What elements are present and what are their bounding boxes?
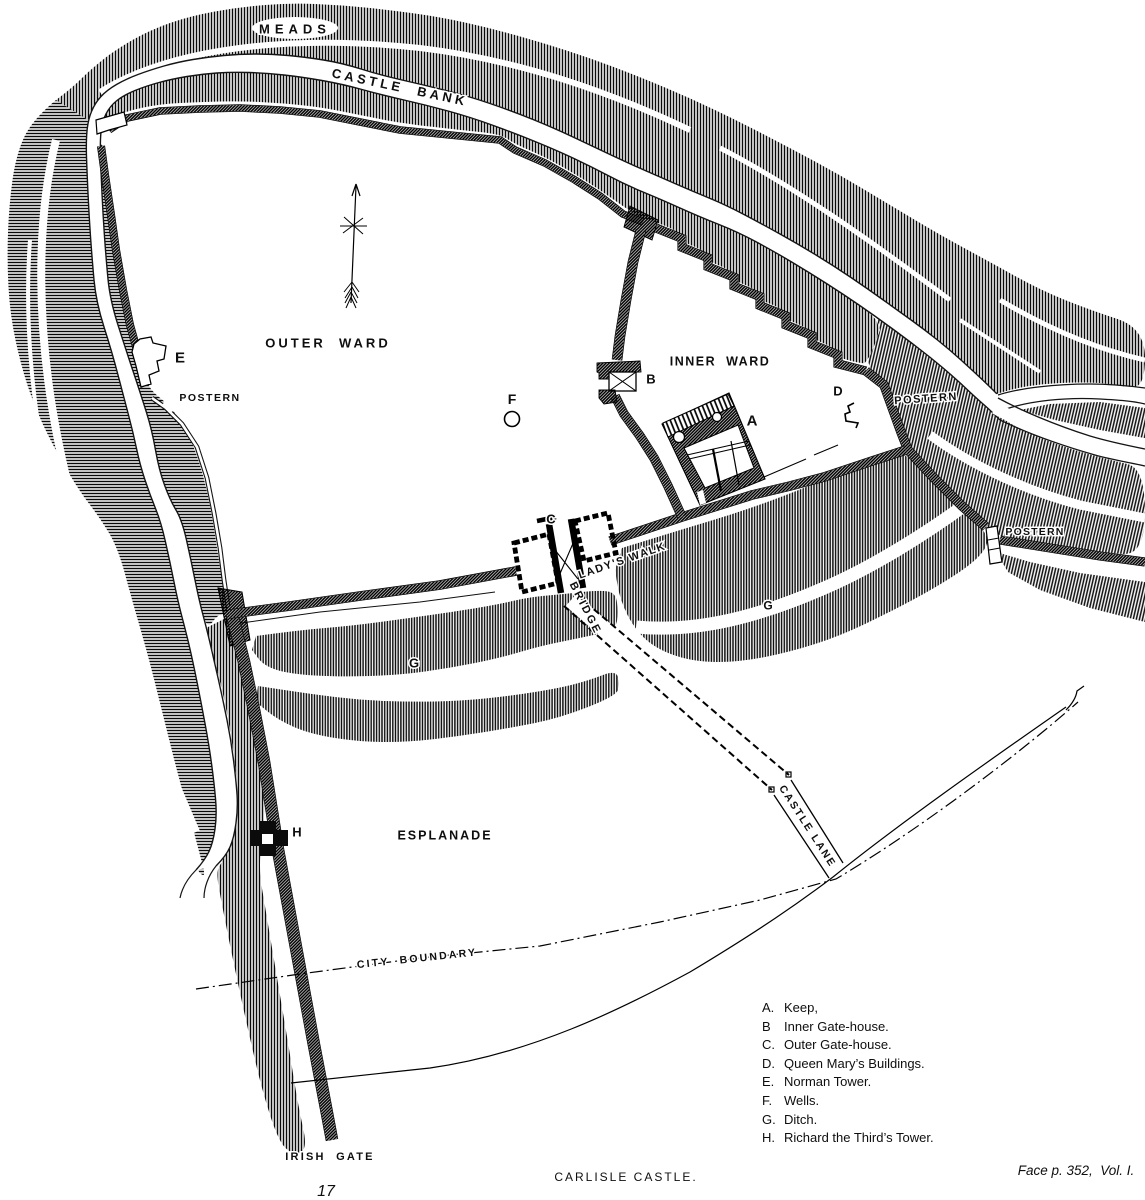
svg-text:OUTER WARD: OUTER WARD bbox=[265, 336, 390, 351]
svg-text:G.: G. bbox=[762, 1112, 776, 1127]
svg-text:E.: E. bbox=[762, 1074, 774, 1089]
svg-text:Inner Gate-house.: Inner Gate-house. bbox=[784, 1019, 889, 1034]
svg-text:H.: H. bbox=[762, 1130, 775, 1145]
svg-text:D.: D. bbox=[762, 1056, 775, 1071]
svg-text:E: E bbox=[175, 349, 185, 366]
svg-text:C.: C. bbox=[762, 1037, 775, 1052]
svg-text:F.: F. bbox=[762, 1093, 772, 1108]
svg-text:A.: A. bbox=[762, 1000, 774, 1015]
svg-text:Wells.: Wells. bbox=[784, 1093, 819, 1108]
svg-text:Outer Gate-house.: Outer Gate-house. bbox=[784, 1037, 892, 1052]
svg-text:Keep,: Keep, bbox=[784, 1000, 818, 1015]
svg-text:F: F bbox=[508, 391, 517, 407]
svg-text:Queen Mary’s Buildings.: Queen Mary’s Buildings. bbox=[784, 1056, 925, 1071]
svg-text:CARLISLE CASTLE.: CARLISLE CASTLE. bbox=[554, 1170, 697, 1184]
svg-text:Face p. 352, Vol. I.: Face p. 352, Vol. I. bbox=[1018, 1163, 1135, 1178]
svg-text:B: B bbox=[762, 1019, 771, 1034]
svg-text:ESPLANADE: ESPLANADE bbox=[397, 829, 492, 843]
svg-text:G: G bbox=[763, 598, 772, 612]
svg-text:B: B bbox=[646, 372, 655, 387]
svg-text:G: G bbox=[409, 656, 419, 671]
svg-text:D: D bbox=[833, 384, 842, 399]
svg-text:IRISH GATE: IRISH GATE bbox=[285, 1151, 374, 1163]
svg-text:17: 17 bbox=[317, 1183, 336, 1200]
svg-text:Richard the Third’s Tower.: Richard the Third’s Tower. bbox=[784, 1130, 934, 1145]
svg-text:C: C bbox=[546, 512, 556, 527]
svg-text:Ditch.: Ditch. bbox=[784, 1112, 817, 1127]
svg-text:INNER WARD: INNER WARD bbox=[670, 355, 771, 369]
svg-text:A: A bbox=[747, 412, 758, 429]
svg-text:POSTERN: POSTERN bbox=[179, 392, 240, 404]
svg-text:Norman Tower.: Norman Tower. bbox=[784, 1074, 871, 1089]
svg-text:MEADS: MEADS bbox=[259, 22, 331, 37]
svg-text:H: H bbox=[292, 825, 301, 840]
svg-text:POSTERN: POSTERN bbox=[1005, 526, 1064, 538]
